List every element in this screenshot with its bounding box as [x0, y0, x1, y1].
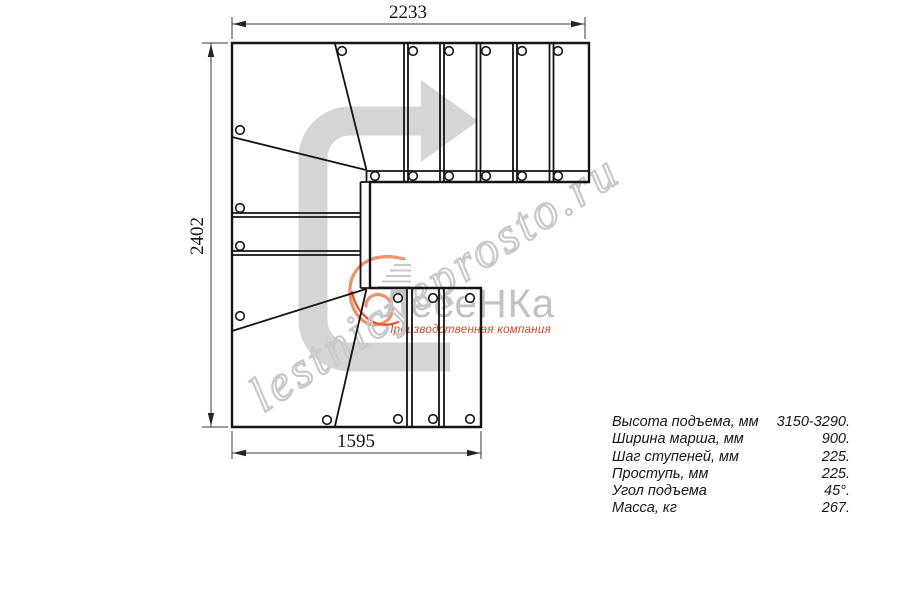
spec-value: 225.: [822, 449, 850, 466]
spec-value: 225.: [822, 466, 850, 483]
step-lines: [232, 44, 589, 426]
spec-value: 267.: [822, 500, 850, 517]
spec-label: Масса, кг: [612, 500, 677, 517]
stair-plan-page: { "drawing": { "title_hint": "staircase …: [0, 0, 900, 600]
spec-row: Проступь, мм 225.: [612, 466, 850, 483]
spec-label: Проступь, мм: [612, 466, 708, 483]
spec-row: Шаг ступеней, мм 225.: [612, 449, 850, 466]
dimension-arrowheads: [208, 21, 584, 456]
dimension-bottom: 1595: [306, 431, 406, 453]
spec-label: Угол подъема: [612, 483, 707, 500]
spec-value: 900.: [822, 431, 850, 448]
spec-value: 45°.: [824, 483, 850, 500]
dimension-top: 2233: [358, 2, 458, 24]
dimension-left: 2402: [187, 186, 207, 286]
spec-row: Высота подъема, мм 3150-3290.: [612, 414, 850, 431]
plan-outline: [232, 43, 589, 427]
spec-row: Ширина марша, мм 900.: [612, 431, 850, 448]
spec-row: Масса, кг 267.: [612, 500, 850, 517]
spec-label: Ширина марша, мм: [612, 431, 744, 448]
spec-value: 3150-3290.: [777, 414, 850, 431]
spec-label: Высота подъема, мм: [612, 414, 759, 431]
dimension-lines: [202, 17, 585, 459]
spec-row: Угол подъема 45°.: [612, 483, 850, 500]
specs-table: Высота подъема, мм 3150-3290. Ширина мар…: [612, 414, 850, 518]
spec-label: Шаг ступеней, мм: [612, 449, 739, 466]
